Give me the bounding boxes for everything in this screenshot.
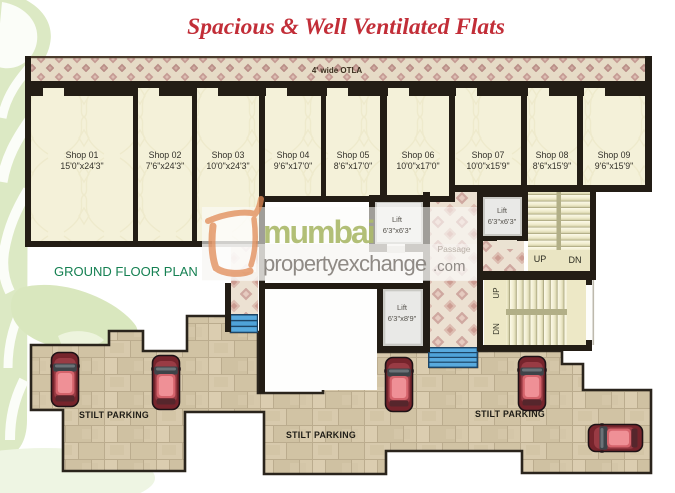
svg-text:Lift: Lift bbox=[397, 303, 408, 312]
svg-text:Shop 08: Shop 08 bbox=[536, 150, 569, 160]
svg-text:10'0"x15'9": 10'0"x15'9" bbox=[466, 161, 509, 171]
svg-text:UP: UP bbox=[492, 287, 501, 298]
svg-text:STILT PARKING: STILT PARKING bbox=[79, 410, 149, 420]
svg-text:Shop 02: Shop 02 bbox=[149, 150, 182, 160]
svg-text:9'6"x15'9": 9'6"x15'9" bbox=[595, 161, 633, 171]
svg-text:Shop 03: Shop 03 bbox=[212, 150, 245, 160]
svg-text:8'6"x17'0": 8'6"x17'0" bbox=[334, 161, 372, 171]
svg-text:UP: UP bbox=[534, 254, 547, 264]
svg-text:DN: DN bbox=[569, 255, 582, 265]
svg-text:4' wide OTLA: 4' wide OTLA bbox=[312, 66, 363, 75]
svg-text:15'0"x24'3": 15'0"x24'3" bbox=[60, 161, 103, 171]
svg-text:Spacious & Well Ventilated Fla: Spacious & Well Ventilated Flats bbox=[187, 14, 505, 40]
svg-text:Shop 05: Shop 05 bbox=[337, 150, 370, 160]
svg-text:Shop 01: Shop 01 bbox=[66, 150, 99, 160]
svg-text:8'6"x15'9": 8'6"x15'9" bbox=[533, 161, 571, 171]
svg-text:Shop 09: Shop 09 bbox=[598, 150, 631, 160]
svg-text:10'0"x24'3": 10'0"x24'3" bbox=[206, 161, 249, 171]
svg-text:propertyexchange: propertyexchange bbox=[263, 251, 427, 276]
svg-text:.com: .com bbox=[433, 258, 466, 275]
svg-text:10'0"x17'0": 10'0"x17'0" bbox=[396, 161, 439, 171]
svg-text:mumbai: mumbai bbox=[263, 214, 374, 250]
svg-text:Shop 06: Shop 06 bbox=[402, 150, 435, 160]
svg-text:6'3"x6'3": 6'3"x6'3" bbox=[383, 226, 412, 235]
svg-text:STILT PARKING: STILT PARKING bbox=[286, 430, 356, 440]
svg-text:Lift: Lift bbox=[497, 206, 508, 215]
svg-text:STILT PARKING: STILT PARKING bbox=[475, 409, 545, 419]
svg-text:9'6"x17'0": 9'6"x17'0" bbox=[274, 161, 312, 171]
svg-text:6'3"x6'3": 6'3"x6'3" bbox=[488, 217, 517, 226]
svg-text:GROUND FLOOR PLAN: GROUND FLOOR PLAN bbox=[54, 264, 198, 279]
svg-text:Shop 04: Shop 04 bbox=[277, 150, 310, 160]
svg-text:Shop 07: Shop 07 bbox=[472, 150, 505, 160]
svg-text:6'3"x8'9": 6'3"x8'9" bbox=[388, 314, 417, 323]
svg-text:7'6"x24'3": 7'6"x24'3" bbox=[146, 161, 184, 171]
svg-text:DN: DN bbox=[492, 323, 501, 335]
svg-text:Lift: Lift bbox=[392, 215, 403, 224]
svg-text:Passage: Passage bbox=[437, 244, 470, 254]
